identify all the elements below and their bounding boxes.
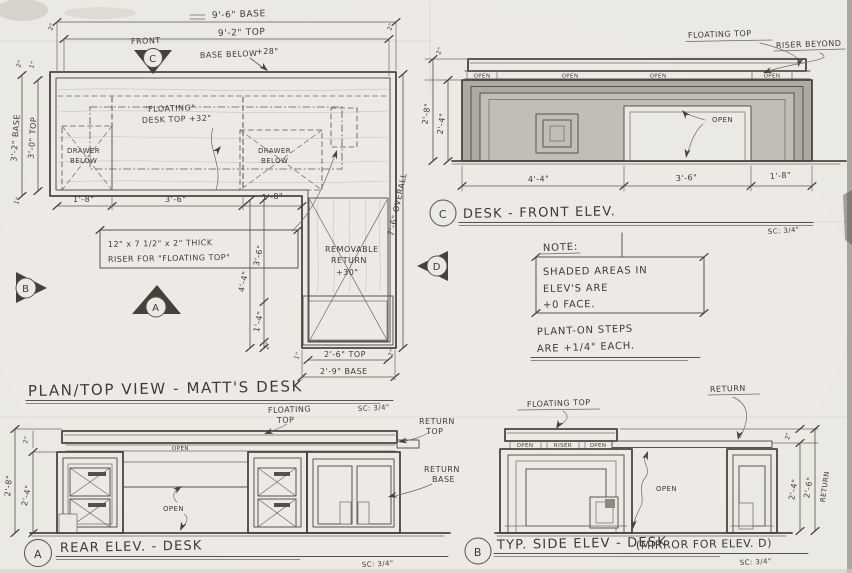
side-elev-scale: SC: 3/4" bbox=[740, 557, 772, 567]
front-elev-floating-top-label: FLOATING TOP bbox=[688, 29, 752, 40]
plan-riser-note-line1: 12" x 7 1/2" x 2" THICK bbox=[108, 238, 213, 249]
plan-removable-label-3: +30" bbox=[336, 268, 359, 277]
rear-elev-floating-label-2: TOP bbox=[276, 415, 295, 425]
side-elev-marker: B bbox=[474, 546, 482, 559]
front-elev-riser-beyond-label: RISER BEYOND bbox=[776, 39, 842, 50]
rear-elev-return-top-label-1: RETURN bbox=[419, 417, 455, 426]
front-elev-open-3: OPEN bbox=[650, 74, 667, 80]
plan-scale: SC: 3/4" bbox=[358, 403, 390, 413]
side-elev-return-label: RETURN bbox=[710, 384, 746, 394]
plan-base-below-value: +28" bbox=[256, 47, 279, 56]
rear-elev-return-base-label-2: BASE bbox=[432, 475, 455, 484]
plan-dim-top-width: 9'-2" TOP bbox=[218, 27, 266, 39]
side-elev-open-center: OPEN bbox=[656, 485, 677, 493]
plan-dim-left-base: 3'-2" BASE bbox=[9, 114, 21, 162]
plan-front-label: FRONT bbox=[131, 36, 161, 46]
note-line-2: ELEV'S ARE bbox=[543, 283, 609, 295]
side-elev-return-vertical-label: RETURN bbox=[819, 471, 831, 503]
plan-drawer-left-label2: BELOW bbox=[70, 157, 97, 165]
rear-elev-return-base-label-1: RETURN bbox=[424, 465, 460, 474]
front-elev-open-1: OPEN bbox=[474, 74, 491, 80]
front-elev-open-2: OPEN bbox=[562, 74, 579, 80]
front-elev-marker: C bbox=[439, 208, 447, 221]
rear-elev-floating-label-1: FLOATING bbox=[268, 404, 312, 415]
side-elev-mirror-note: (MIRROR FOR ELEV. D) bbox=[636, 537, 772, 552]
plan-drawer-right-label2: BELOW bbox=[261, 157, 288, 165]
plan-dim-left-top: 3'-0" TOP bbox=[27, 117, 39, 160]
plan-dim-base-width: 9'-6" BASE bbox=[212, 9, 266, 21]
plan-dim-return-top: 2'-6" TOP bbox=[324, 350, 366, 359]
side-elev-dim-outer: 2'-6" bbox=[802, 476, 815, 499]
plan-dim-bottom-mid: 3'-6" bbox=[165, 195, 186, 204]
plan-floating-label-1: "FLOATING" bbox=[144, 103, 196, 114]
front-elev-dim-bottom-mid: 3'-6" bbox=[676, 173, 698, 183]
rear-elev-scale: SC: 3/4" bbox=[362, 559, 394, 569]
plan-removable-label-2: RETURN bbox=[331, 256, 367, 265]
plan-dim-2in-left: 2" bbox=[15, 59, 24, 68]
rear-elev-open-center: OPEN bbox=[163, 505, 184, 513]
front-elev-dim-bottom-left: 4'-4" bbox=[528, 174, 550, 184]
side-elev-dim-inner: 2'-4" bbox=[787, 478, 800, 501]
note-line-1: SHADED AREAS IN bbox=[543, 265, 648, 278]
rear-elev-open-band: OPEN bbox=[172, 446, 189, 452]
rear-elev-return-top-label-2: TOP bbox=[425, 427, 444, 436]
plan-marker-b: B bbox=[22, 284, 30, 295]
plan-dim-return-base: 2'-9" BASE bbox=[320, 367, 368, 376]
front-elev-dim-bottom-right: 1'-8" bbox=[770, 171, 792, 181]
plan-dim-bottom-left: 1'-8" bbox=[73, 195, 94, 204]
front-elev-body bbox=[462, 80, 812, 161]
front-elev-title: DESK - FRONT ELEV. bbox=[463, 204, 616, 222]
plan-dim-bottom-right: 1'-8" bbox=[262, 192, 284, 202]
front-elev-open-4: OPEN bbox=[764, 74, 781, 80]
rear-elev-dim-inner: 2'-4" bbox=[20, 484, 33, 507]
note-heading: NOTE: bbox=[543, 242, 579, 254]
plan-marker-a: A bbox=[152, 303, 160, 314]
plan-marker-d: D bbox=[433, 262, 442, 273]
drawing-sheet: DRAWER BELOW DRAWER BELOW "FLOATING" DES… bbox=[0, 0, 852, 573]
front-elev-open-center: OPEN bbox=[712, 116, 733, 124]
plan-removable-label-1: REMOVABLE bbox=[325, 245, 379, 254]
rear-elev-marker: A bbox=[34, 548, 42, 561]
rear-elev-title: REAR ELEV. - DESK bbox=[60, 539, 203, 556]
plan-dim-1in-left: 1" bbox=[28, 60, 37, 69]
plan-marker-c: C bbox=[149, 54, 157, 65]
rear-elev-dim-2in: 2" bbox=[22, 436, 31, 445]
plan-drawer-right-label1: DRAWER bbox=[258, 147, 291, 155]
note-line-3: +0 FACE. bbox=[543, 299, 595, 311]
rear-elev-dim-outer: 2'-8" bbox=[3, 475, 14, 497]
plan-drawer-left-label1: DRAWER bbox=[67, 147, 100, 155]
